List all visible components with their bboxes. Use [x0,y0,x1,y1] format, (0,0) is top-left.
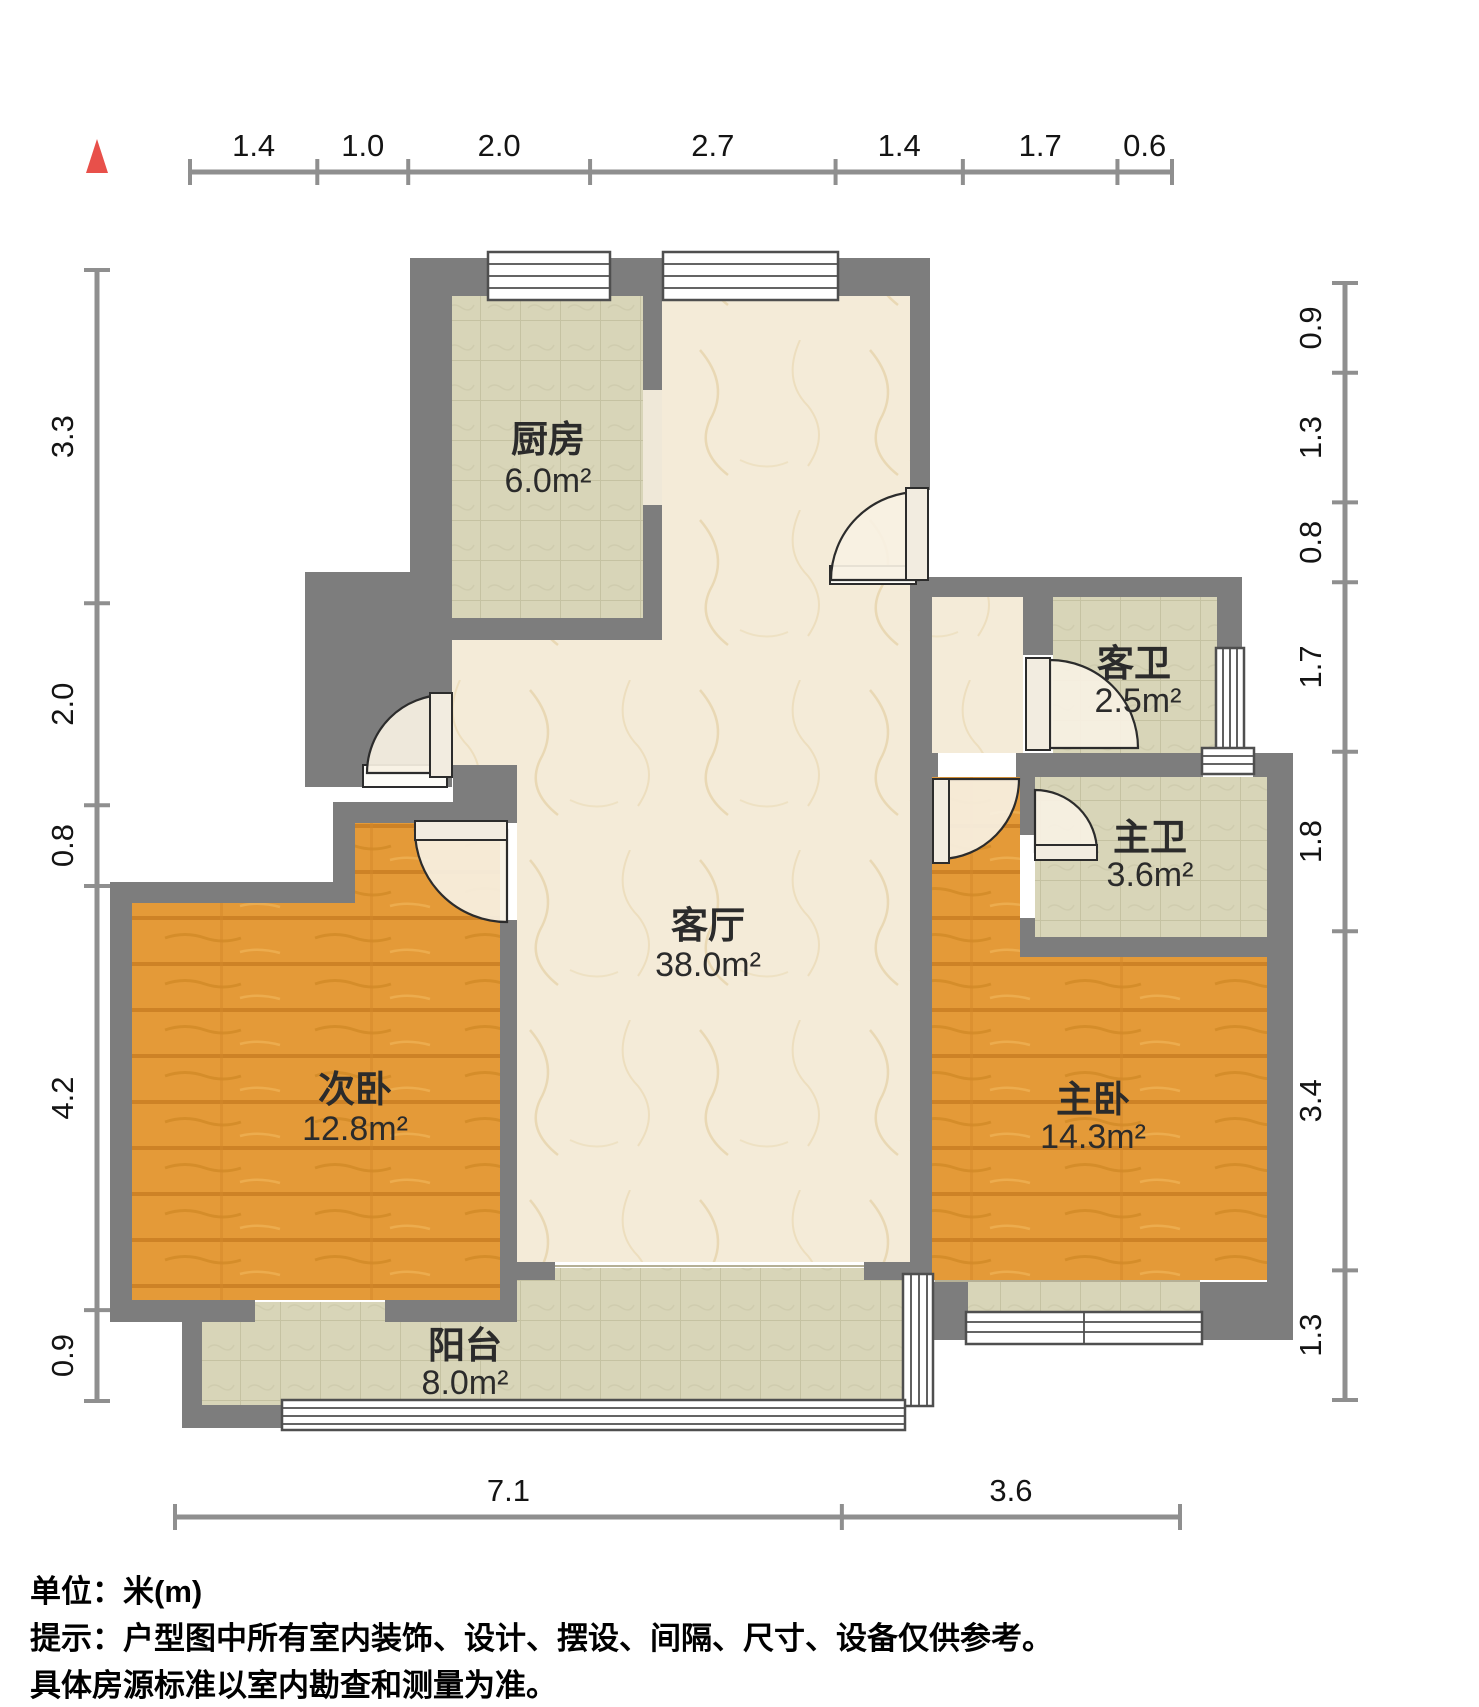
guest-bath-label: 客卫 [1097,643,1171,684]
dim-right-text: 1.8 [1293,820,1328,863]
footer-disclaimer-line: 具体房源标准以室内勘查和测量为准。 [30,1662,1330,1707]
dim-top-text: 1.0 [341,128,384,163]
wall-balcony-corner [182,1405,282,1428]
dim-right-text: 1.3 [1293,416,1328,459]
wall-bay-left [932,1282,968,1340]
dim-top: 1.41.02.02.71.41.70.6 [190,128,1172,185]
dim-left-text: 2.0 [45,683,80,726]
living-floor-nook [930,597,1023,753]
guest-bath-window-sill [1202,748,1254,774]
wall-2bed-left [110,882,132,1322]
balcony-area: 8.0m² [422,1364,509,1402]
wall-masterbath-bottom [1020,937,1267,957]
dim-bottom-text: 7.1 [487,1473,530,1508]
dim-left-text: 3.3 [45,415,80,458]
dim-top-text: 2.0 [478,128,521,163]
wall-kitchen-right-upper [643,296,662,390]
second-bedroom-area: 12.8m² [302,1110,408,1148]
master-bedroom-area: 14.3m² [1040,1118,1146,1156]
balcony-rail-window [282,1400,905,1430]
dim-left-text: 4.2 [45,1076,80,1119]
balcony-floor-upper [517,1268,905,1322]
wall-band-b [1016,753,1203,777]
wall-guestbath-right [1217,597,1242,650]
wall-2bed-bottom-right [385,1300,517,1322]
living-area: 38.0m² [655,946,761,984]
dim-right-text: 1.7 [1293,645,1328,688]
wall-right-outer [1267,753,1293,1340]
dim-right-text: 0.8 [1293,521,1328,564]
dim-left: 3.32.00.84.20.9 [45,270,110,1401]
living-top-window [663,252,838,300]
dim-left-text: 0.9 [45,1334,80,1377]
kitchen-label: 厨房 [511,419,585,460]
footer-notes: 单位：米(m) 提示：户型图中所有室内装饰、设计、摆设、间隔、尺寸、设备仅供参考… [30,1568,1330,1707]
wall-2bed-right [500,920,517,1322]
wall-bay-right [1200,1282,1293,1340]
wall-2bed-top-left [110,882,355,903]
second-bedroom-label: 次卧 [318,1069,392,1110]
balcony-passage [255,1302,385,1322]
dim-right-text: 0.9 [1293,306,1328,349]
floorplan-page: 厨房 6.0m² 客厅 38.0m² 客卫 2.5m² 主卫 3.6m² 次卧 … [0,0,1479,1707]
wall-kitchen-right-lower [643,505,662,640]
dim-top-text: 1.4 [878,128,921,163]
footer-unit-line: 单位：米(m) [30,1568,1330,1615]
dim-top-text: 1.4 [232,128,275,163]
dim-bottom-text: 3.6 [989,1473,1032,1508]
wall-guestbath-left [1023,597,1053,655]
wall-corridor-join [453,765,517,823]
north-marker-icon [86,139,108,173]
dim-left-text: 0.8 [45,824,80,867]
living-label: 客厅 [671,905,745,946]
wall-masterbath-left-upper [1020,777,1035,835]
dim-right-text: 1.3 [1293,1314,1328,1357]
dim-top-text: 0.6 [1123,128,1166,163]
kitchen-window [488,252,610,300]
guest-bath-window [1216,648,1244,752]
guest-bath-area: 2.5m² [1095,682,1182,720]
master-bedroom-label: 主卧 [1056,1079,1130,1120]
floorplan-canvas: 厨房 6.0m² 客厅 38.0m² 客卫 2.5m² 主卫 3.6m² 次卧 … [0,0,1479,1707]
master-bath-label: 主卫 [1113,817,1187,858]
footer-tip-line: 提示：户型图中所有室内装饰、设计、摆设、间隔、尺寸、设备仅供参考。 [30,1615,1330,1662]
bay-window [966,1312,1202,1344]
living-floor-corridor [452,628,910,768]
wall-under-recess [910,577,1242,597]
bay-window-floor [935,1282,1200,1312]
wall-entry-right [910,277,930,490]
kitchen-area: 6.0m² [505,462,592,500]
wall-stub-balcony-left [517,1262,555,1280]
kitchen-passage-opening [643,390,662,505]
wall-masterbed-left [910,582,932,1280]
dim-top-text: 2.7 [691,128,734,163]
dim-bottom: 7.13.6 [175,1473,1180,1530]
master-bath-area: 3.6m² [1107,856,1194,894]
dim-right: 0.91.30.81.71.83.41.3 [1293,283,1358,1400]
dim-top-text: 1.7 [1019,128,1062,163]
balcony-floor [202,1322,905,1405]
balcony-label: 阳台 [428,1325,502,1366]
dim-right-text: 3.4 [1293,1079,1328,1122]
living-floor-main [517,768,910,1262]
balcony-side-window [903,1274,933,1406]
